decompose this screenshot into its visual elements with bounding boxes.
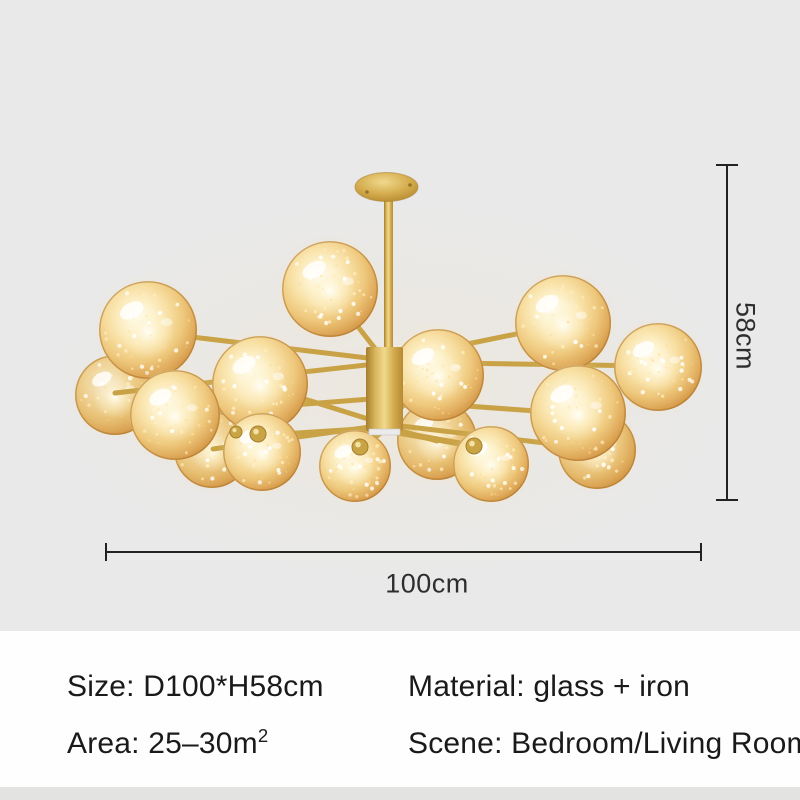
fairy-light-dot	[269, 359, 271, 361]
fairy-light-dot	[118, 395, 121, 398]
fairy-light-dot	[545, 439, 548, 442]
fairy-light-dot	[323, 248, 326, 251]
fairy-light-dot	[317, 285, 320, 288]
fairy-light-dot	[342, 299, 344, 301]
fairy-light-dot	[475, 377, 477, 379]
fairy-light-dot	[131, 367, 134, 370]
fairy-light-dot	[496, 470, 500, 474]
fairy-light-dot	[438, 408, 440, 410]
fairy-light-dot	[514, 481, 517, 484]
fairy-light-dot	[370, 296, 373, 299]
fairy-light-dot	[111, 324, 113, 326]
fairy-light-dot	[319, 256, 323, 260]
fairy-light-dot	[291, 438, 294, 441]
fairy-light-dot	[261, 477, 263, 479]
fairy-light-dot	[231, 447, 233, 449]
fairy-light-dot	[156, 433, 159, 436]
hub-ring	[369, 429, 400, 435]
fairy-light-dot	[491, 494, 493, 496]
fairy-light-dot	[207, 405, 210, 408]
fairy-light-dot	[596, 394, 598, 396]
fairy-light-dot	[365, 466, 367, 468]
fairy-light-dot	[594, 344, 598, 348]
fairy-light-dot	[338, 469, 341, 472]
fairy-light-dot	[140, 365, 144, 369]
fairy-light-dot	[691, 363, 693, 365]
fairy-light-dot	[170, 384, 172, 386]
fairy-light-dot	[413, 465, 416, 468]
fairy-light-dot	[491, 478, 495, 482]
fairy-light-dot	[282, 433, 285, 436]
fairy-light-dot	[500, 487, 503, 490]
fairy-light-dot	[560, 288, 563, 291]
fairy-light-dot	[130, 355, 132, 357]
fairy-light-dot	[365, 482, 369, 486]
fairy-light-dot	[437, 336, 439, 338]
fairy-light-dot	[338, 309, 342, 313]
fairy-light-dot	[336, 250, 339, 253]
fairy-light-dot	[87, 404, 90, 407]
fairy-light-dot	[512, 459, 514, 461]
fairy-light-dot	[364, 470, 367, 473]
fairy-light-dot	[562, 285, 565, 288]
fairy-light-dot	[370, 486, 374, 490]
fairy-light-dot	[650, 357, 652, 359]
fairy-light-dot	[570, 290, 573, 293]
fairy-light-dot	[493, 484, 496, 487]
fairy-light-dot	[324, 321, 328, 325]
fairy-light-dot	[231, 411, 235, 415]
fairy-light-dot	[586, 328, 588, 330]
fairy-light-dot	[119, 307, 121, 309]
fairy-light-dot	[608, 415, 612, 419]
fairy-light-dot	[146, 408, 149, 411]
fairy-light-dot	[690, 379, 694, 383]
fairy-light-dot	[375, 444, 379, 448]
socket-highlight	[232, 428, 236, 432]
fairy-light-dot	[273, 466, 275, 468]
fairy-light-dot	[419, 463, 422, 466]
fairy-light-dot	[573, 340, 577, 344]
fairy-light-dot	[678, 387, 682, 391]
fairy-light-dot	[587, 389, 589, 391]
fairy-light-dot	[445, 446, 448, 449]
fairy-light-dot	[165, 403, 168, 406]
fairy-light-dot	[232, 406, 236, 410]
fairy-light-dot	[420, 345, 424, 349]
globe-highlight-small	[364, 457, 373, 463]
fairy-light-dot	[105, 338, 108, 341]
fairy-light-dot	[304, 309, 307, 312]
fairy-light-dot	[661, 359, 665, 363]
canopy-screw	[408, 183, 412, 187]
fairy-light-dot	[147, 321, 151, 325]
chandelier-stem	[384, 198, 393, 350]
globe-highlight-small	[272, 372, 284, 380]
fairy-light-dot	[574, 394, 578, 398]
fairy-light-dot	[592, 427, 596, 431]
fairy-light-dot	[150, 416, 154, 420]
fairy-light-dot	[490, 467, 494, 471]
fairy-light-dot	[329, 469, 333, 473]
fairy-light-dot	[248, 445, 252, 449]
fairy-light-dot	[427, 468, 431, 472]
fairy-light-dot	[295, 262, 299, 266]
fairy-light-dot	[491, 492, 493, 494]
globe-socket	[250, 426, 266, 442]
fairy-light-dot	[153, 293, 157, 297]
fairy-light-dot	[382, 459, 386, 463]
fairy-light-dot	[208, 420, 211, 423]
fairy-light-dot	[567, 296, 569, 298]
fairy-light-dot	[463, 385, 467, 389]
fairy-light-dot	[353, 292, 356, 295]
fairy-light-dot	[337, 316, 341, 320]
fairy-light-dot	[432, 450, 434, 452]
fairy-light-dot	[345, 257, 349, 261]
fairy-light-dot	[164, 346, 166, 348]
fairy-light-dot	[163, 420, 166, 423]
fairy-light-dot	[318, 315, 322, 319]
fairy-light-dot	[271, 433, 274, 436]
fairy-light-dot	[551, 314, 554, 317]
fairy-light-dot	[348, 493, 351, 496]
fairy-light-dot	[142, 293, 145, 296]
fairy-light-dot	[268, 441, 271, 444]
fairy-light-dot	[162, 424, 166, 428]
fairy-light-dot	[336, 464, 337, 465]
fairy-light-dot	[174, 382, 177, 385]
fairy-light-dot	[233, 438, 235, 440]
fairy-light-dot	[512, 448, 515, 451]
fairy-light-dot	[267, 461, 268, 462]
fairy-light-dot	[270, 364, 273, 367]
fairy-light-dot	[601, 380, 603, 382]
fairy-light-dot	[330, 299, 332, 301]
fairy-light-dot	[554, 440, 558, 444]
fairy-light-dot	[350, 480, 354, 484]
product-photo: 58cm 100cm	[0, 0, 800, 631]
fairy-light-dot	[679, 368, 683, 372]
fairy-light-dot	[345, 435, 348, 438]
fairy-light-dot	[299, 283, 301, 285]
fairy-light-dot	[563, 380, 565, 382]
fairy-light-dot	[549, 335, 551, 337]
fairy-light-dot	[281, 461, 284, 464]
fairy-light-dot	[440, 383, 444, 387]
fairy-light-dot	[665, 367, 667, 369]
fairy-light-dot	[268, 426, 270, 428]
fairy-light-dot	[150, 335, 152, 337]
spec-material: Material: glass + iron	[408, 670, 690, 704]
fairy-light-dot	[588, 451, 590, 453]
fairy-light-dot	[572, 441, 574, 443]
chandelier-canopy	[355, 173, 418, 202]
fairy-light-dot	[428, 460, 430, 462]
fairy-light-dot	[127, 350, 129, 352]
fairy-light-dot	[151, 365, 154, 368]
height-dimension-label: 58cm	[730, 302, 761, 370]
fairy-light-dot	[616, 401, 619, 404]
footer-strip	[0, 787, 800, 800]
fairy-light-dot	[615, 470, 618, 473]
fairy-light-dot	[571, 286, 572, 287]
fairy-light-dot	[206, 464, 210, 468]
fairy-light-dot	[323, 307, 326, 310]
fairy-light-dot	[646, 378, 650, 382]
fairy-light-dot	[494, 477, 496, 479]
fairy-light-dot	[497, 494, 498, 495]
fairy-light-dot	[271, 377, 273, 379]
fairy-light-dot	[104, 331, 107, 334]
fairy-light-dot	[322, 288, 323, 289]
fairy-light-dot	[152, 389, 155, 392]
fairy-light-dot	[421, 338, 425, 342]
fairy-light-dot	[661, 394, 664, 397]
fairy-light-dot	[543, 355, 547, 359]
fairy-light-dot	[441, 364, 445, 368]
fairy-light-dot	[574, 322, 577, 325]
globe-highlight-small	[342, 277, 354, 285]
fairy-light-dot	[588, 319, 589, 320]
fairy-light-dot	[259, 418, 261, 420]
fairy-light-dot	[117, 344, 121, 348]
fairy-light-dot	[552, 379, 554, 381]
globe-highlight-small	[450, 364, 461, 371]
fairy-light-dot	[185, 419, 187, 421]
fairy-light-dot	[125, 291, 129, 295]
fairy-light-dot	[210, 476, 214, 480]
fairy-light-dot	[108, 419, 109, 420]
fairy-light-dot	[477, 369, 479, 371]
fairy-light-dot	[551, 411, 555, 415]
fairy-light-dot	[229, 355, 233, 359]
fairy-light-dot	[610, 459, 614, 463]
fairy-light-dot	[607, 467, 610, 470]
fairy-light-dot	[422, 368, 424, 370]
fairy-light-dot	[520, 467, 524, 471]
fairy-light-dot	[206, 458, 210, 462]
fairy-light-dot	[243, 452, 247, 456]
fairy-light-dot	[170, 427, 172, 429]
fairy-light-dot	[440, 452, 442, 454]
fairy-light-dot	[409, 399, 413, 403]
fairy-light-dot	[426, 369, 428, 371]
fairy-light-dot	[369, 483, 370, 484]
fairy-light-dot	[587, 344, 589, 346]
fairy-light-dot	[268, 438, 271, 441]
fairy-light-dot	[564, 348, 566, 350]
fairy-light-dot	[338, 441, 341, 444]
fairy-light-dot	[97, 363, 101, 367]
fairy-light-dot	[167, 302, 169, 304]
fairy-light-dot	[681, 378, 684, 381]
fairy-light-dot	[356, 312, 360, 316]
fairy-light-dot	[592, 334, 594, 336]
fairy-light-dot	[276, 468, 280, 472]
fairy-light-dot	[301, 277, 305, 281]
fairy-light-dot	[567, 321, 569, 323]
fairy-light-dot	[683, 366, 685, 368]
fairy-light-dot	[264, 450, 268, 454]
fairy-light-dot	[666, 344, 669, 347]
fairy-light-dot	[679, 356, 683, 360]
width-dimension-label: 100cm	[385, 569, 469, 600]
fairy-light-dot	[275, 431, 279, 435]
fairy-light-dot	[447, 351, 449, 353]
fairy-light-dot	[629, 354, 631, 356]
fairy-light-dot	[529, 294, 533, 298]
fairy-light-dot	[375, 457, 379, 461]
fairy-light-dot	[496, 439, 499, 442]
fairy-light-dot	[639, 360, 643, 364]
fairy-light-dot	[335, 468, 337, 470]
fairy-light-dot	[180, 430, 183, 433]
fairy-light-dot	[432, 392, 436, 396]
fairy-light-dot	[592, 375, 595, 378]
fairy-light-dot	[643, 362, 647, 366]
fairy-light-dot	[579, 443, 581, 445]
canopy-screw	[365, 190, 369, 194]
fairy-light-dot	[546, 383, 549, 386]
fairy-light-dot	[570, 308, 573, 311]
fairy-light-dot	[415, 365, 418, 368]
fairy-light-dot	[512, 466, 516, 470]
fairy-light-dot	[582, 447, 584, 449]
fairy-light-dot	[362, 293, 365, 296]
fairy-light-dot	[117, 353, 120, 356]
fairy-light-dot	[440, 395, 443, 398]
spec-area-superscript: 2	[258, 725, 269, 746]
globe-highlight-small	[501, 455, 510, 461]
fairy-light-dot	[427, 363, 430, 366]
fairy-light-dot	[569, 287, 571, 289]
fairy-light-dot	[330, 321, 332, 323]
fairy-light-dot	[542, 436, 546, 440]
fairy-light-dot	[234, 398, 237, 401]
fairy-light-dot	[503, 481, 507, 485]
fairy-light-dot	[142, 431, 144, 433]
fairy-light-dot	[132, 334, 136, 338]
fairy-light-dot	[316, 254, 318, 256]
fairy-light-dot	[256, 355, 260, 359]
fairy-light-dot	[360, 311, 362, 313]
fairy-light-dot	[627, 358, 629, 360]
fairy-light-dot	[252, 463, 256, 467]
fairy-light-dot	[175, 303, 179, 307]
fairy-light-dot	[288, 439, 291, 442]
fairy-light-dot	[460, 473, 462, 475]
fairy-light-dot	[626, 350, 630, 354]
fairy-light-dot	[158, 359, 161, 362]
fairy-light-dot	[97, 396, 100, 399]
fairy-light-dot	[334, 478, 336, 480]
fairy-light-dot	[210, 429, 213, 432]
globe-highlight-small	[669, 356, 680, 363]
fairy-light-dot	[440, 343, 443, 346]
fairy-light-dot	[288, 463, 289, 464]
fairy-light-dot	[551, 351, 554, 354]
fairy-light-dot	[254, 460, 256, 462]
fairy-light-dot	[353, 488, 355, 490]
fairy-light-dot	[335, 264, 337, 266]
globe-highlight-small	[161, 318, 173, 326]
fairy-light-dot	[461, 351, 465, 355]
fairy-light-dot	[489, 485, 491, 487]
fairy-light-dot	[342, 249, 346, 253]
fairy-light-dot	[544, 399, 546, 401]
fairy-light-dot	[651, 359, 653, 361]
globe-socket	[466, 438, 482, 454]
fairy-light-dot	[280, 401, 283, 404]
fairy-light-dot	[84, 394, 88, 398]
fairy-light-dot	[568, 378, 571, 381]
fairy-light-dot	[671, 351, 673, 353]
fairy-light-dot	[176, 348, 178, 350]
fairy-light-dot	[160, 314, 163, 317]
fairy-light-dot	[598, 409, 602, 413]
fairy-light-dot	[137, 349, 139, 351]
fairy-light-dot	[222, 388, 225, 391]
fairy-light-dot	[146, 315, 148, 317]
fairy-light-dot	[598, 398, 601, 401]
fairy-light-dot	[264, 379, 268, 383]
fairy-light-dot	[286, 456, 288, 458]
fairy-light-dot	[236, 356, 240, 360]
fairy-light-dot	[314, 310, 317, 313]
fairy-light-dot	[264, 347, 266, 349]
fairy-light-dot	[149, 439, 151, 441]
globe-socket	[352, 439, 368, 455]
fairy-light-dot	[504, 446, 506, 448]
fairy-light-dot	[583, 476, 586, 479]
fairy-light-dot	[80, 399, 82, 401]
fairy-light-dot	[586, 474, 590, 478]
fairy-light-dot	[350, 454, 353, 457]
spec-size: Size: D100*H58cm	[67, 670, 324, 704]
fairy-light-dot	[194, 386, 197, 389]
fairy-light-dot	[415, 380, 418, 383]
fairy-light-dot	[375, 476, 378, 479]
fairy-light-dot	[574, 388, 576, 390]
fairy-light-dot	[594, 446, 597, 449]
fairy-light-dot	[657, 392, 660, 395]
spec-panel: Size: D100*H58cm Material: glass + iron …	[0, 631, 800, 787]
fairy-light-dot	[292, 393, 294, 395]
fairy-light-dot	[661, 384, 664, 387]
fairy-light-dot	[358, 464, 362, 468]
fairy-light-dot	[272, 402, 275, 405]
fairy-light-dot	[512, 464, 514, 466]
fairy-light-dot	[428, 387, 431, 390]
fairy-light-dot	[641, 390, 645, 394]
fairy-light-dot	[521, 324, 525, 328]
fairy-light-dot	[282, 360, 284, 362]
fairy-light-dot	[406, 355, 408, 357]
fairy-light-dot	[509, 487, 512, 490]
fairy-light-dot	[535, 315, 539, 319]
fairy-light-dot	[337, 464, 341, 468]
fairy-light-dot	[353, 272, 356, 275]
fairy-light-dot	[104, 387, 106, 389]
fairy-light-dot	[484, 477, 487, 480]
spec-area: Area: 25–30m2	[67, 727, 268, 761]
fairy-light-dot	[185, 451, 188, 454]
fairy-light-dot	[252, 352, 255, 355]
fairy-light-dot	[191, 433, 194, 436]
fairy-light-dot	[553, 419, 557, 423]
fairy-light-dot	[377, 467, 380, 470]
